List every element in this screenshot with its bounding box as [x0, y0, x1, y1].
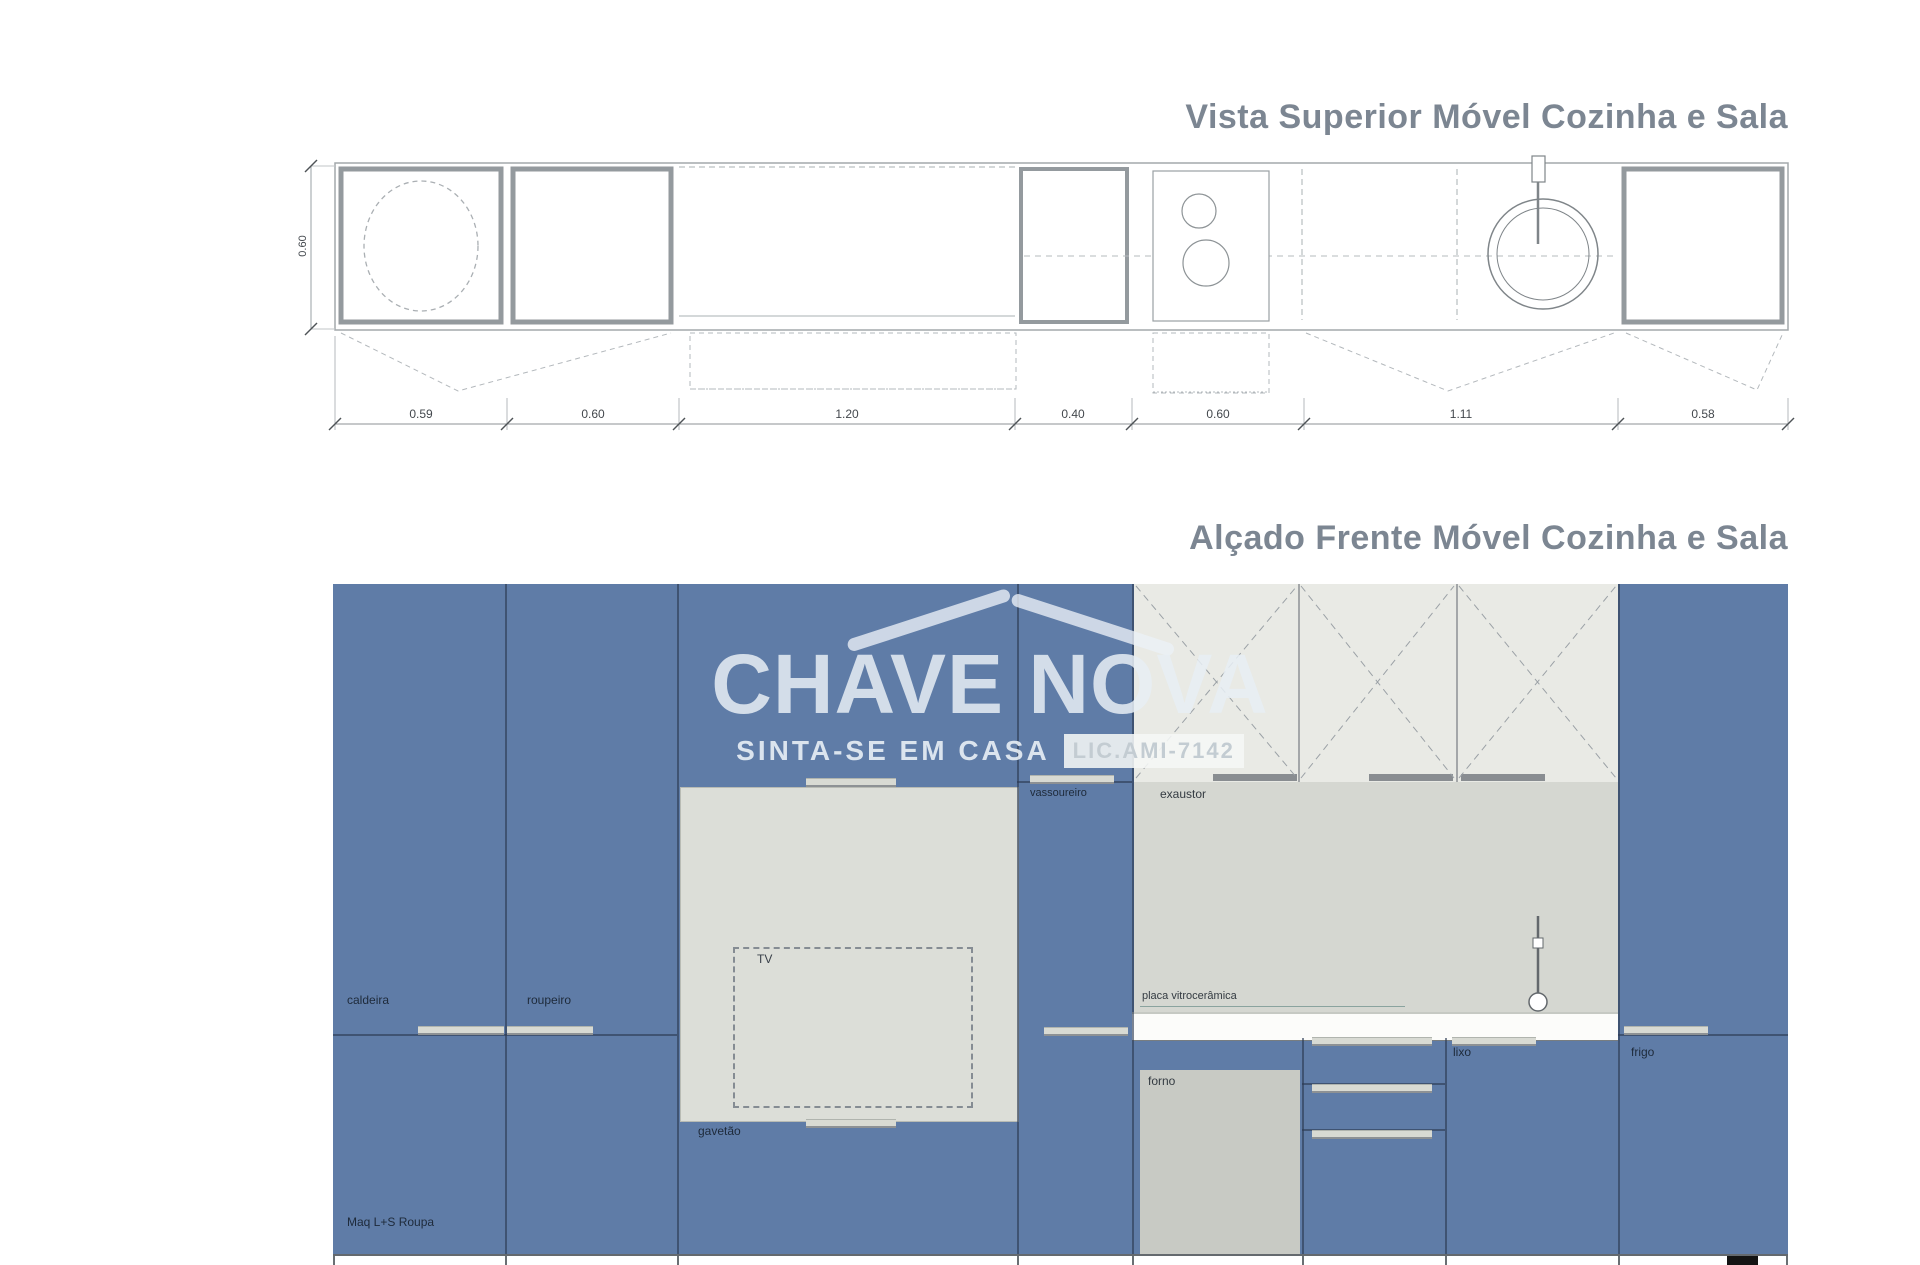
label-placa-vitroceramica: placa vitrocerâmica: [1142, 991, 1237, 1002]
cooktop-burner-small: [1182, 194, 1216, 228]
label-lixo: lixo: [1453, 1046, 1471, 1058]
dim-width-2: 0.60: [563, 407, 623, 421]
plan-washer-drum: [364, 181, 478, 311]
plinth-tick: [1618, 1256, 1620, 1265]
handle-drawer-3: [1312, 1130, 1432, 1139]
page-corner-mark: [1727, 1256, 1758, 1265]
plinth-tick: [505, 1256, 507, 1265]
handle-upper-door-1: [1213, 774, 1297, 781]
label-maq-roupa: Maq L+S Roupa: [347, 1216, 434, 1228]
architectural-drawing-page: Vista Superior Móvel Cozinha e Sala Alça…: [0, 0, 1920, 1265]
oven-panel: [1140, 1070, 1300, 1256]
plinth-tick: [333, 1256, 335, 1265]
plan-module-cabinet-2: [513, 169, 671, 322]
plan-open-counter-lines: [679, 167, 1614, 320]
handle-caldeira: [418, 1026, 504, 1035]
plinth-tick: [1786, 1256, 1788, 1265]
divider-caldeira-roupeiro: [505, 584, 507, 1265]
divider-wardrobe-doors: [333, 1034, 677, 1036]
dim-width-7: 0.58: [1673, 407, 1733, 421]
plan-depth-dimension-line: [305, 160, 335, 335]
divider-roupeiro-tv: [677, 584, 679, 1265]
plinth-tick: [1302, 1256, 1304, 1265]
label-frigo: frigo: [1631, 1046, 1654, 1058]
handle-drawer-2: [1312, 1084, 1432, 1093]
plinth-tick: [677, 1256, 679, 1265]
label-gavetao: gavetão: [698, 1125, 741, 1137]
placa-underline: [1140, 1006, 1405, 1007]
upper-cabinets-panel: [1134, 584, 1618, 783]
plan-cooktop: [1153, 171, 1269, 321]
dim-depth: 0.60: [297, 224, 309, 268]
plan-outline: [335, 163, 1788, 330]
backsplash-panel: [1134, 782, 1618, 1012]
plan-faucet-icon: [1532, 156, 1545, 244]
handle-gavetao: [806, 1119, 896, 1128]
divider-vassoureiro-kitchen: [1132, 584, 1134, 1256]
dim-width-3: 1.20: [817, 407, 877, 421]
plan-sink: [1488, 199, 1598, 309]
divider-forno-drawers: [1302, 1038, 1304, 1256]
handle-upper-door-2: [1369, 774, 1453, 781]
dim-width-5: 0.60: [1188, 407, 1248, 421]
tv-dashed-outline: [733, 947, 973, 1108]
handle-drawer-1: [1312, 1037, 1432, 1046]
label-exaustor: exaustor: [1160, 788, 1206, 800]
plan-modules: [341, 169, 1782, 322]
divider-tv-vassoureiro: [1017, 584, 1019, 1265]
handle-vassoureiro-top: [1030, 775, 1114, 784]
handle-upper-door-3: [1461, 774, 1545, 781]
plan-title: Vista Superior Móvel Cozinha e Sala: [1088, 97, 1788, 138]
label-caldeira: caldeira: [347, 994, 389, 1006]
label-forno: forno: [1148, 1075, 1175, 1087]
elevation-title: Alçado Frente Móvel Cozinha e Sala: [1088, 518, 1788, 559]
handle-vassoureiro-mid: [1044, 1027, 1128, 1036]
handle-roupeiro: [507, 1026, 593, 1035]
handle-tv-upper-door: [806, 778, 896, 787]
plan-module-vassoureiro: [1021, 169, 1127, 322]
plinth-tick: [1132, 1256, 1134, 1265]
divider-drawers-lixo: [1445, 1038, 1447, 1256]
plan-module-frigo: [1624, 169, 1782, 322]
divider-kitchen-frigo: [1618, 584, 1620, 1265]
label-vassoureiro: vassoureiro: [1030, 788, 1087, 799]
dim-width-1: 0.59: [391, 407, 451, 421]
plinth-strip: [333, 1256, 1788, 1265]
plan-module-washer: [341, 169, 501, 322]
dim-width-6: 1.11: [1431, 407, 1491, 421]
plan-door-swing-lines: [341, 333, 1783, 393]
label-tv: TV: [757, 953, 772, 965]
dim-width-4: 0.40: [1043, 407, 1103, 421]
plinth-tick: [1445, 1256, 1447, 1265]
plinth-tick: [1017, 1256, 1019, 1265]
handle-frigo: [1624, 1026, 1708, 1035]
cooktop-burner-large: [1183, 240, 1229, 286]
label-roupeiro: roupeiro: [527, 994, 571, 1006]
